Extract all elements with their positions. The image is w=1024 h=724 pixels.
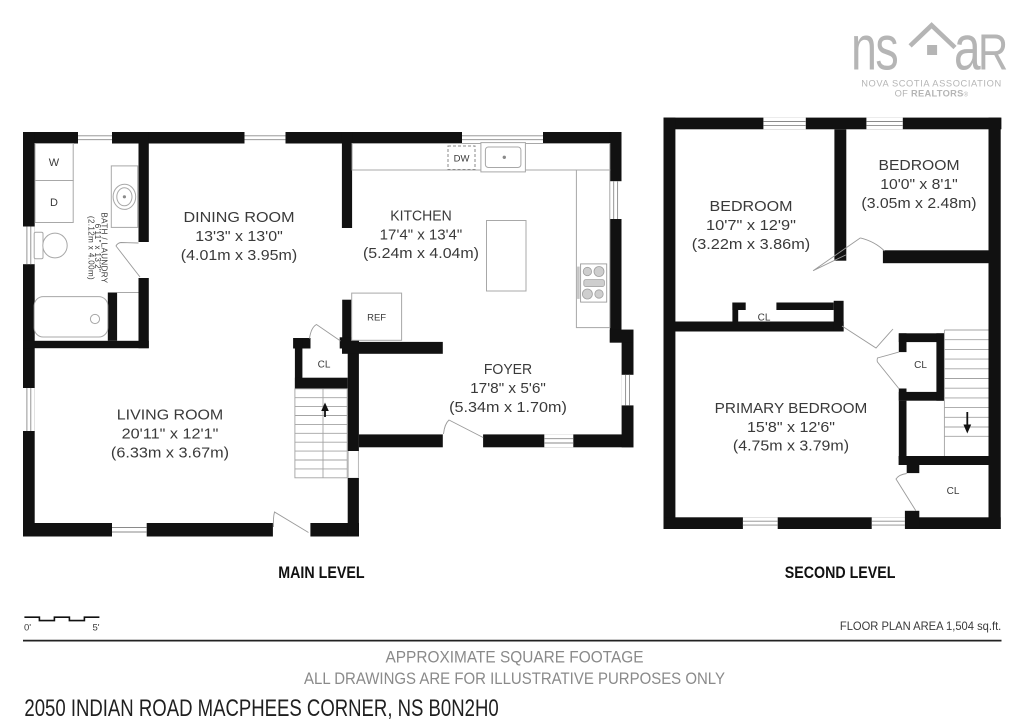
svg-text:CL: CL	[758, 313, 771, 324]
svg-text:(6.33m x 3.67m): (6.33m x 3.67m)	[111, 446, 229, 462]
svg-text:(4.01m x 3.95m): (4.01m x 3.95m)	[181, 248, 297, 264]
svg-text:KITCHEN: KITCHEN	[390, 209, 452, 225]
svg-text:10'7" x 12'9": 10'7" x 12'9"	[706, 218, 796, 234]
svg-text:BEDROOM: BEDROOM	[710, 199, 793, 215]
svg-text:REF: REF	[367, 313, 386, 324]
svg-text:(4.75m x 3.79m): (4.75m x 3.79m)	[733, 439, 849, 455]
svg-text:CL: CL	[914, 360, 927, 371]
svg-text:APPROXIMATE SQUARE FOOTAGE: APPROXIMATE SQUARE FOOTAGE	[386, 649, 644, 667]
svg-text:D: D	[50, 197, 58, 209]
svg-text:17'8" x 5'6": 17'8" x 5'6"	[470, 381, 546, 397]
svg-text:20'11" x 12'1": 20'11" x 12'1"	[122, 427, 219, 443]
svg-text:5': 5'	[93, 622, 100, 633]
svg-text:17'4" x 13'4": 17'4" x 13'4"	[380, 228, 463, 244]
svg-text:0': 0'	[24, 622, 31, 633]
svg-text:DINING ROOM: DINING ROOM	[184, 210, 295, 226]
svg-text:10'0" x 8'1": 10'0" x 8'1"	[880, 177, 958, 193]
svg-text:15'8" x 12'6": 15'8" x 12'6"	[747, 420, 835, 436]
svg-text:(5.24m x 4.04m): (5.24m x 4.04m)	[363, 246, 479, 262]
svg-text:CL: CL	[318, 360, 331, 371]
svg-text:FLOOR PLAN AREA 1,504 sq.ft.: FLOOR PLAN AREA 1,504 sq.ft.	[840, 619, 1001, 633]
svg-text:(5.34m x 1.70m): (5.34m x 1.70m)	[449, 400, 567, 416]
svg-text:NOVA SCOTIA ASSOCIATION: NOVA SCOTIA ASSOCIATION	[861, 79, 1002, 89]
svg-text:(3.22m x 3.86m): (3.22m x 3.86m)	[692, 237, 810, 253]
svg-text:CL: CL	[947, 486, 960, 497]
svg-text:PRIMARY BEDROOM: PRIMARY BEDROOM	[715, 401, 868, 417]
svg-text:BEDROOM: BEDROOM	[879, 158, 960, 174]
svg-text:13'3" x 13'0": 13'3" x 13'0"	[195, 229, 283, 245]
svg-text:(2.12m x 4.00m): (2.12m x 4.00m)	[87, 216, 96, 280]
svg-text:FOYER: FOYER	[484, 362, 532, 378]
svg-text:DW: DW	[454, 154, 470, 165]
svg-text:ns: ns	[851, 13, 897, 83]
svg-text:W: W	[49, 157, 60, 169]
svg-text:2050 INDIAN ROAD MACPHEES CORN: 2050 INDIAN ROAD MACPHEES CORNER, NS B0N…	[24, 695, 498, 722]
svg-text:SECOND LEVEL: SECOND LEVEL	[785, 563, 896, 582]
svg-text:OF REALTORS®: OF REALTORS®	[895, 89, 969, 99]
svg-text:ALL DRAWINGS ARE FOR ILLUSTRAT: ALL DRAWINGS ARE FOR ILLUSTRATIVE PURPOS…	[304, 670, 725, 688]
svg-text:LIVING ROOM: LIVING ROOM	[117, 408, 224, 424]
svg-text:(3.05m x 2.48m): (3.05m x 2.48m)	[861, 196, 976, 212]
svg-text:R: R	[978, 24, 1008, 81]
svg-text:MAIN LEVEL: MAIN LEVEL	[278, 563, 364, 582]
